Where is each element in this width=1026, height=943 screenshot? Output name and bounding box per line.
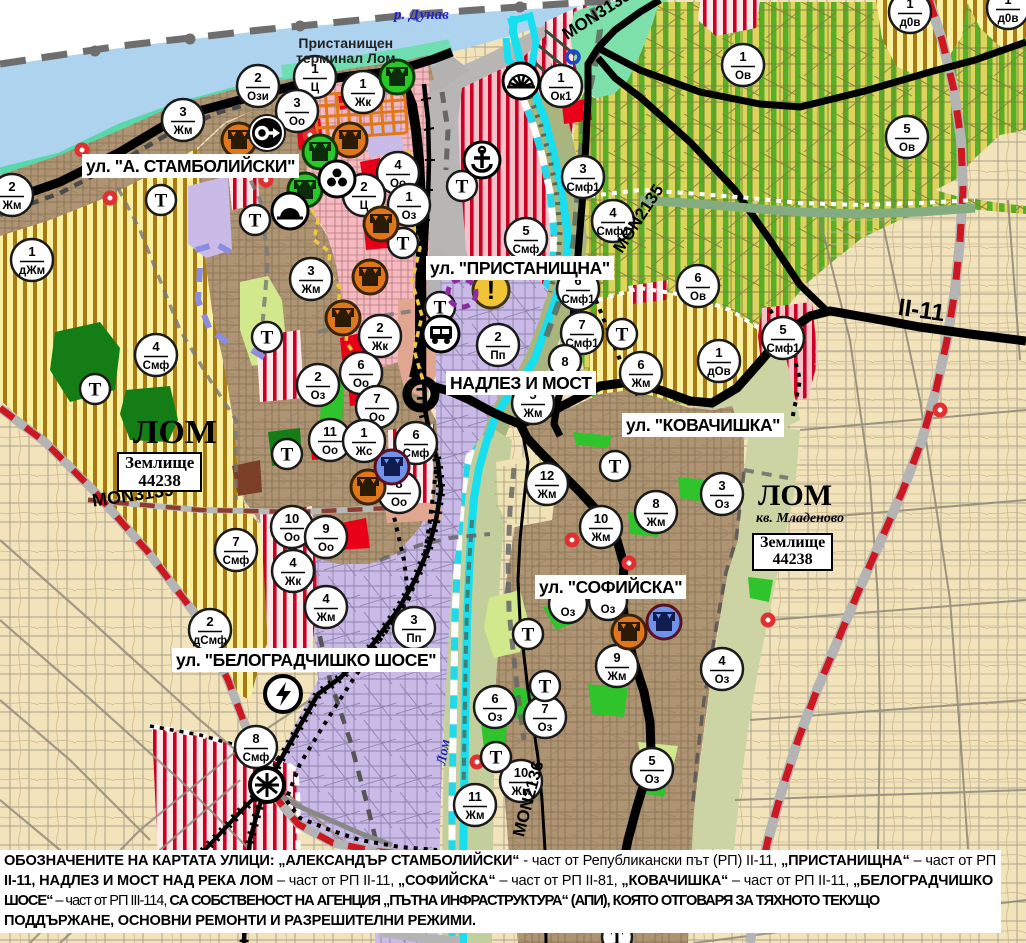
svg-text:7: 7: [232, 534, 239, 549]
svg-text:Ов: Ов: [735, 70, 751, 82]
svg-text:Смф1: Смф1: [766, 343, 800, 355]
svg-text:Оз: Оз: [645, 774, 660, 786]
svg-text:д0в: д0в: [900, 17, 921, 29]
svg-text:Смф1: Смф1: [561, 294, 595, 306]
svg-text:Ок1: Ок1: [550, 91, 572, 103]
svg-text:1: 1: [359, 76, 366, 91]
svg-text:7: 7: [541, 701, 548, 716]
svg-text:1: 1: [405, 189, 412, 204]
svg-text:3: 3: [307, 263, 314, 278]
svg-text:Пп: Пп: [490, 350, 505, 362]
svg-text:4: 4: [718, 653, 726, 668]
svg-text:дСмф: дСмф: [193, 635, 227, 647]
svg-text:Оз: Оз: [715, 674, 730, 686]
svg-text:3: 3: [179, 104, 186, 119]
svg-text:Оз: Оз: [311, 390, 326, 402]
svg-text:Жм: Жм: [646, 517, 666, 529]
svg-text:11: 11: [323, 424, 337, 439]
svg-text:7: 7: [578, 317, 585, 332]
svg-text:Пп: Пп: [406, 633, 421, 645]
svg-text:4: 4: [152, 339, 160, 354]
svg-text:Оз: Оз: [538, 722, 553, 734]
svg-text:Оз: Оз: [561, 607, 576, 619]
svg-text:Жм: Жм: [523, 408, 543, 420]
svg-text:8: 8: [561, 354, 568, 369]
svg-text:1: 1: [739, 49, 746, 64]
svg-text:Смф: Смф: [223, 555, 250, 567]
svg-text:дЖм: дЖм: [19, 265, 45, 277]
svg-text:4: 4: [609, 205, 617, 220]
svg-text:6: 6: [637, 357, 644, 372]
svg-text:1: 1: [557, 70, 564, 85]
svg-text:6: 6: [412, 427, 419, 442]
svg-text:дОв: дОв: [707, 366, 730, 378]
svg-text:Жм: Жм: [2, 200, 22, 212]
svg-text:2: 2: [8, 179, 15, 194]
svg-text:Смф: Смф: [143, 360, 170, 372]
svg-text:Жм: Жм: [631, 378, 651, 390]
svg-text:Т: Т: [539, 677, 552, 698]
svg-text:Т: Т: [616, 325, 629, 346]
svg-text:8: 8: [652, 496, 659, 511]
svg-text:6: 6: [491, 691, 498, 706]
svg-text:Т: Т: [281, 445, 294, 466]
svg-text:Смф: Смф: [243, 752, 270, 764]
svg-text:Оо: Оо: [284, 532, 300, 544]
svg-text:Т: Т: [89, 380, 102, 401]
svg-text:Ов: Ов: [690, 291, 706, 303]
svg-text:3: 3: [293, 95, 300, 110]
svg-text:Оо: Оо: [318, 542, 334, 554]
svg-text:Оо: Оо: [322, 445, 338, 457]
svg-text:7: 7: [373, 391, 380, 406]
svg-text:11: 11: [468, 789, 482, 804]
svg-text:1: 1: [906, 0, 913, 11]
svg-text:5: 5: [903, 121, 910, 136]
svg-text:2: 2: [254, 70, 261, 85]
svg-text:Жк: Жк: [371, 341, 388, 353]
svg-text:Оз: Оз: [601, 604, 616, 616]
svg-text:Т: Т: [456, 177, 469, 198]
svg-text:2: 2: [206, 614, 213, 629]
svg-text:Т: Т: [261, 328, 274, 349]
svg-text:Жм: Жм: [316, 612, 336, 624]
svg-text:Смф1: Смф1: [566, 182, 600, 194]
svg-text:5: 5: [648, 753, 655, 768]
svg-text:12: 12: [540, 468, 554, 483]
svg-text:3: 3: [579, 161, 586, 176]
svg-text:Ов: Ов: [899, 142, 915, 154]
svg-text:8: 8: [252, 731, 259, 746]
svg-text:Жм: Жм: [301, 284, 321, 296]
svg-text:10: 10: [285, 511, 299, 526]
svg-text:Ц: Ц: [360, 200, 369, 212]
svg-text:Жм: Жм: [591, 532, 611, 544]
svg-text:9: 9: [613, 650, 620, 665]
svg-text:10: 10: [594, 511, 608, 526]
svg-text:Смф: Смф: [513, 244, 540, 256]
svg-text:9: 9: [322, 521, 329, 536]
svg-text:Жк: Жк: [354, 97, 371, 109]
svg-text:5: 5: [522, 223, 529, 238]
svg-text:3: 3: [718, 478, 725, 493]
svg-text:Жм: Жм: [173, 125, 193, 137]
svg-text:Оз: Оз: [402, 210, 417, 222]
svg-text:Т: Т: [522, 625, 535, 646]
svg-text:6: 6: [694, 270, 701, 285]
svg-text:2: 2: [376, 320, 383, 335]
svg-text:Жс: Жс: [355, 446, 373, 458]
svg-text:Т: Т: [397, 234, 410, 255]
svg-text:2: 2: [360, 179, 367, 194]
svg-text:Т: Т: [249, 211, 262, 232]
svg-text:4: 4: [394, 157, 402, 172]
svg-text:1: 1: [28, 244, 35, 259]
svg-text:4: 4: [289, 555, 297, 570]
svg-text:Оо: Оо: [391, 497, 407, 509]
svg-text:1: 1: [715, 345, 722, 360]
svg-text:Жм: Жм: [465, 810, 485, 822]
svg-text:Ози: Ози: [247, 91, 269, 103]
svg-text:Т: Т: [155, 191, 168, 212]
svg-text:Ц: Ц: [311, 82, 320, 94]
svg-text:Жм: Жм: [607, 671, 627, 683]
svg-text:5: 5: [779, 322, 786, 337]
svg-text:4: 4: [322, 591, 330, 606]
svg-text:Жм: Жм: [537, 489, 557, 501]
svg-text:Жк: Жк: [284, 576, 301, 588]
svg-text:2: 2: [314, 369, 321, 384]
svg-text:Оз: Оз: [488, 712, 503, 724]
svg-text:Т: Т: [609, 457, 622, 478]
svg-text:Оз: Оз: [715, 499, 730, 511]
svg-text:д0в: д0в: [998, 13, 1019, 25]
svg-text:1: 1: [360, 425, 367, 440]
svg-text:2: 2: [494, 329, 501, 344]
svg-text:Оо: Оо: [289, 116, 305, 128]
svg-text:3: 3: [410, 612, 417, 627]
svg-text:1: 1: [1004, 0, 1011, 7]
svg-text:Т: Т: [490, 748, 503, 769]
svg-text:6: 6: [357, 357, 364, 372]
